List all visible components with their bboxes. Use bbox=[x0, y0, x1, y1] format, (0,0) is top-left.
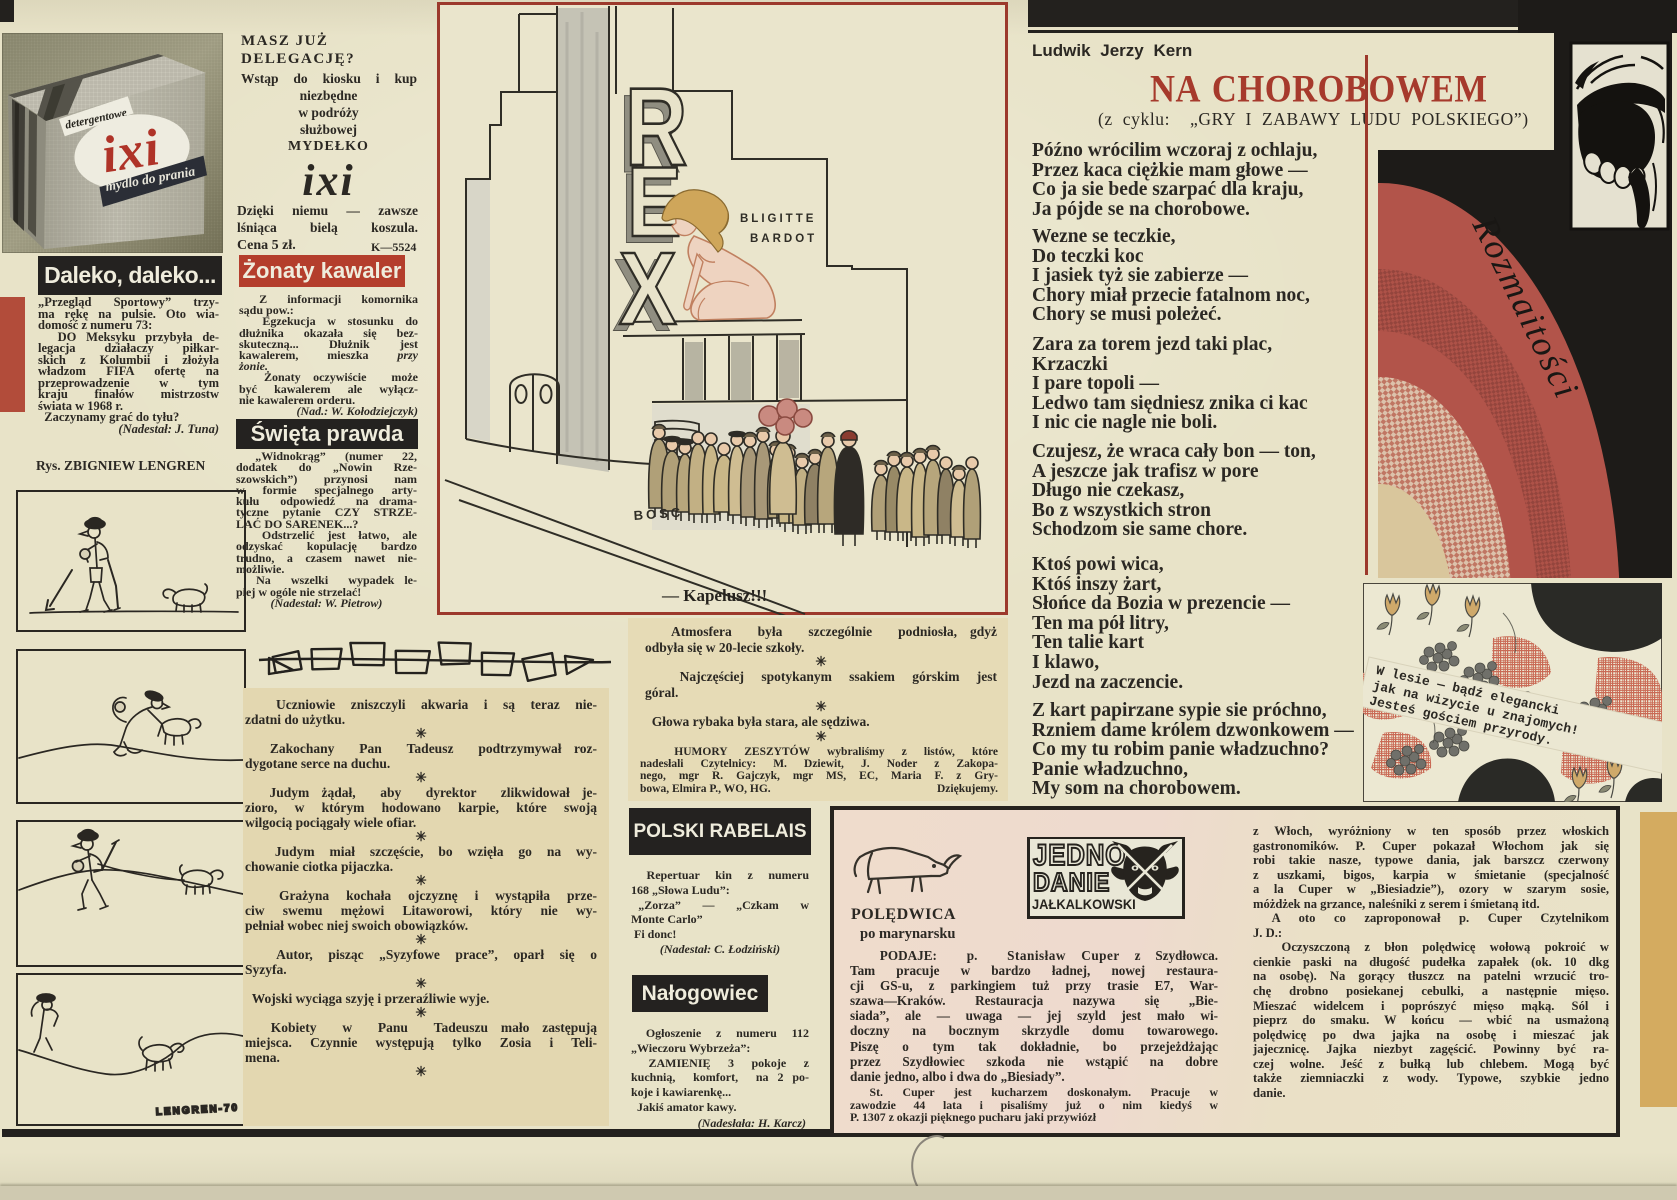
svg-text:— Kapelusz!!!: — Kapelusz!!! bbox=[661, 586, 767, 605]
svg-text:LENGREN-70: LENGREN-70 bbox=[156, 1103, 240, 1118]
svg-text:X: X bbox=[619, 232, 677, 347]
svg-text:BLIGITTE: BLIGITTE bbox=[740, 213, 816, 225]
svg-text:BARDOT: BARDOT bbox=[750, 233, 817, 245]
